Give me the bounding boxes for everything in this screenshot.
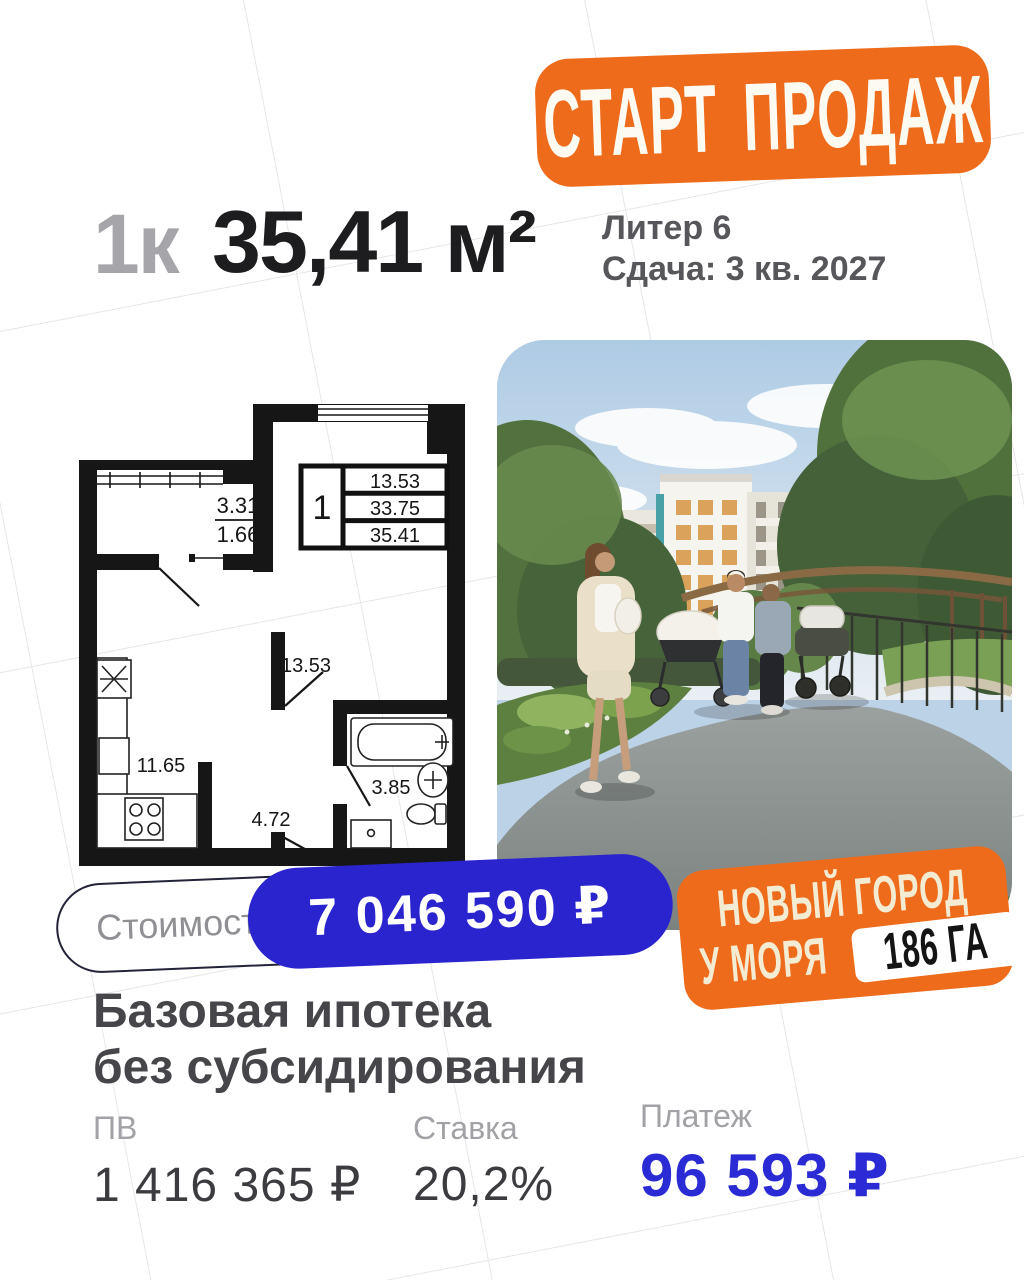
living-room-area-label: 13.53: [281, 655, 331, 677]
fridge-icon: [99, 738, 129, 774]
stat-payment-value: 96 593 ₽: [640, 1141, 890, 1211]
price-value-pill: 7 046 590 ₽: [246, 852, 675, 971]
kitchen-fixtures: [97, 658, 197, 848]
table-rooms-count: 1: [313, 489, 332, 527]
stat-rate-value: 20,2%: [413, 1157, 554, 1212]
bathroom-area-label: 3.85: [372, 777, 411, 799]
delivery-label: Сдача: 3 кв. 2027: [602, 249, 886, 290]
stat-downpayment: ПВ 1 416 365 ₽: [93, 1110, 361, 1213]
flyer-canvas: СТАРТ ПРОДАЖ 1к 35,41 м² Литер 6 Сдача: …: [0, 0, 1024, 1280]
park-scene: [497, 340, 1012, 930]
unit-info-table: 1 13.53 33.75 35.41: [301, 466, 447, 548]
building-delivery-block: Литер 6 Сдача: 3 кв. 2027: [602, 208, 886, 290]
price-value: 7 046 590 ₽: [307, 875, 613, 948]
stat-payment: Платеж 96 593 ₽: [640, 1098, 890, 1211]
project-badge: НОВЫЙ ГОРОД У МОРЯ 186 ГА: [675, 844, 1016, 1012]
stat-downpayment-label: ПВ: [93, 1110, 361, 1147]
project-area-value: 186 ГА: [881, 912, 992, 982]
floorplan-drawing: 1 13.53 33.75 35.41 3.31 1.66 13.53 11.6…: [75, 400, 470, 870]
building-label: Литер 6: [602, 208, 886, 249]
start-sales-badge: СТАРТ ПРОДАЖ: [534, 44, 992, 188]
hallway-area-label: 4.72: [252, 809, 291, 831]
mortgage-title-line1: Базовая ипотека: [93, 984, 586, 1040]
table-area: 33.75: [370, 498, 420, 520]
stat-rate: Ставка 20,2%: [413, 1110, 554, 1212]
project-line2: У МОРЯ: [698, 927, 830, 997]
balcony-dims: 3.31 1.66: [215, 493, 262, 547]
toilet-icon: [407, 804, 435, 824]
table-total-area: 35.41: [370, 525, 420, 547]
park-render-photo: [497, 340, 1012, 930]
table-living-area: 13.53: [370, 471, 420, 493]
stat-downpayment-value: 1 416 365 ₽: [93, 1157, 361, 1213]
balcony-dim-top: 3.31: [217, 493, 260, 518]
balcony-dim-bottom: 1.66: [217, 522, 260, 547]
mortgage-title: Базовая ипотека без субсидирования: [93, 984, 586, 1095]
stat-payment-label: Платеж: [640, 1098, 890, 1135]
stat-rate-label: Ставка: [413, 1110, 554, 1147]
area-value: 35,41 м²: [212, 198, 535, 286]
rooms-type-label: 1к: [93, 202, 178, 286]
mortgage-title-line2: без субсидирования: [93, 1040, 586, 1096]
start-sales-label: СТАРТ ПРОДАЖ: [541, 53, 985, 179]
kitchen-area-label: 11.65: [137, 755, 186, 777]
